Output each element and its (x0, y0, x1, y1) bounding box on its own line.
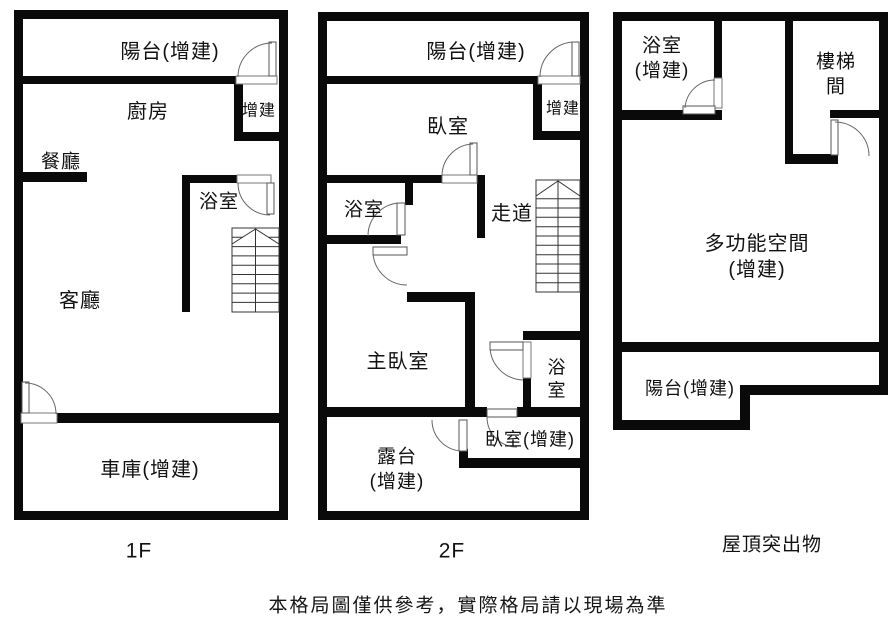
door-arc (238, 43, 272, 77)
label-1f-living: 客廳 (59, 288, 101, 314)
door-arc (685, 80, 715, 108)
label-1f-floor: 1F (126, 537, 153, 564)
door-arc (373, 251, 407, 285)
door-arc (25, 383, 56, 414)
door-roof-stairwell (831, 120, 869, 156)
label-1f-balcony: 陽台(增建) (120, 39, 219, 65)
door-opening (236, 76, 277, 84)
label-2f-bedroom-add: 臥室(增建) (485, 428, 575, 451)
door-2f-balcony (538, 42, 580, 84)
label-roof-bath: 浴室 (增建) (635, 34, 690, 83)
label-roof-multi: 多功能空間(增建) (691, 231, 823, 283)
door-opening (442, 175, 477, 183)
door-leaf (683, 106, 715, 114)
label-1f-garage: 車庫(增建) (100, 457, 199, 483)
label-2f-corridor: 走道 (491, 201, 533, 227)
door-leaf (490, 342, 523, 350)
door-leaf (470, 143, 477, 175)
door-opening (237, 175, 271, 183)
disclaimer-caption: 本格局圖僅供參考，實際格局請以現場為準 (268, 595, 667, 620)
label-1f-kitchen: 廚房 (127, 99, 169, 125)
door-leaf (459, 420, 467, 451)
label-2f-balcony: 陽台(增建) (426, 39, 525, 65)
door-leaf (267, 183, 274, 214)
door-arc (238, 183, 270, 215)
door-2f-master (373, 247, 407, 285)
floorplan-drawing (0, 0, 889, 623)
label-2f-bedroom: 臥室 (427, 114, 469, 140)
door-leaf (831, 120, 838, 155)
door-1f-entry (21, 382, 57, 423)
floorplan: 陽台(增建) 廚房 增建 餐廳 浴室 客廳 車庫(增建) 1F 陽台(增建) 臥… (0, 0, 889, 623)
stairs-2f (536, 180, 580, 292)
label-roof-balcony: 陽台(增建) (645, 377, 735, 400)
door-1f-balcony (236, 42, 277, 84)
label-1f-addition: 增建 (242, 102, 276, 123)
door-2f-bath-right (490, 342, 531, 380)
door-leaf (22, 382, 29, 413)
door-arc (490, 346, 523, 380)
door-1f-bath (237, 175, 274, 215)
label-2f-floor: 2F (439, 537, 466, 564)
door-arc (432, 420, 463, 451)
door-2f-bedroom (442, 143, 477, 183)
label-2f-master: 主臥室 (367, 349, 430, 375)
door-2f-terrace (432, 420, 467, 451)
door-arc (442, 144, 473, 176)
label-2f-bath-left: 浴室 (344, 199, 384, 224)
door-opening (714, 78, 722, 108)
door-leaf (373, 247, 407, 255)
label-2f-addition: 增建 (546, 100, 580, 121)
door-opening (523, 342, 531, 378)
door-arc (835, 122, 869, 156)
door-opening (538, 76, 580, 84)
stairs-1f (232, 228, 279, 312)
door-leaf (397, 203, 405, 235)
label-2f-bath-right: 浴 室 (548, 357, 567, 404)
door-leaf (269, 42, 276, 76)
label-roof-stairwell: 樓梯間 (810, 50, 863, 99)
door-opening (21, 413, 57, 423)
label-1f-bath: 浴室 (199, 191, 239, 216)
label-2f-terrace: 露台 (增建) (370, 445, 425, 494)
door-leaf (572, 42, 579, 76)
label-roof-floor: 屋頂突出物 (722, 534, 822, 559)
door-leaf (487, 409, 517, 417)
door-arc (540, 42, 575, 77)
label-1f-dining: 餐廳 (41, 151, 81, 176)
